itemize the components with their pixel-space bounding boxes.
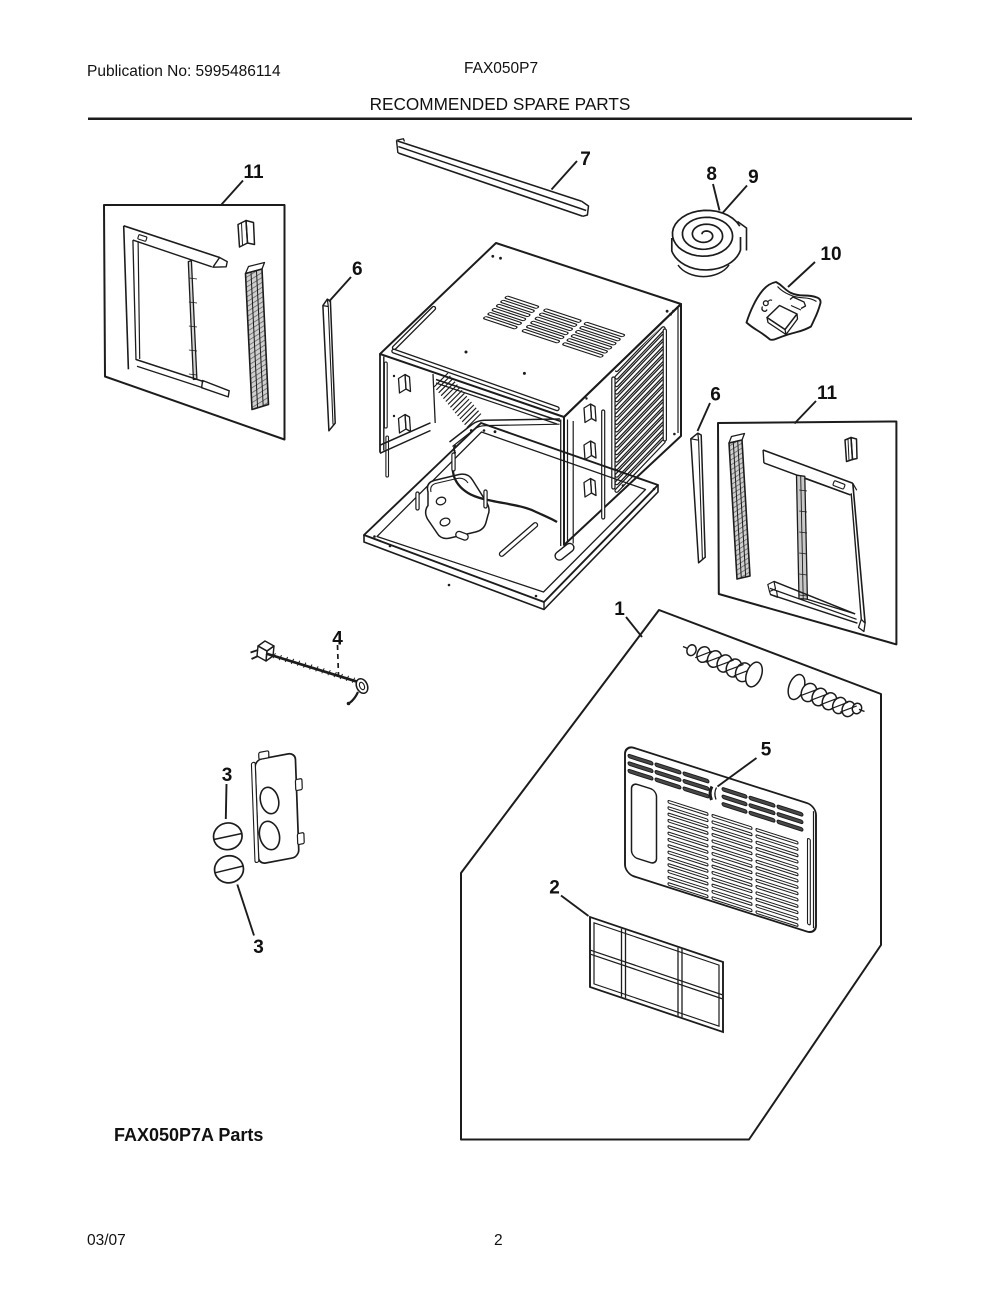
svg-text:2: 2	[549, 878, 560, 899]
svg-text:2: 2	[494, 1232, 503, 1249]
svg-text:8: 8	[706, 164, 717, 185]
svg-text:FAX050P7: FAX050P7	[464, 60, 538, 77]
svg-text:7: 7	[580, 149, 591, 170]
svg-text:10: 10	[820, 244, 841, 265]
svg-text:11: 11	[817, 383, 838, 404]
svg-text:FAX050P7A Parts: FAX050P7A Parts	[114, 1125, 263, 1145]
svg-text:6: 6	[352, 259, 363, 280]
svg-text:Publication No: 5995486114: Publication No: 5995486114	[87, 63, 281, 80]
svg-text:9: 9	[748, 167, 759, 188]
svg-text:3: 3	[253, 937, 264, 958]
svg-text:3: 3	[222, 765, 233, 786]
svg-text:1: 1	[614, 599, 625, 620]
svg-text:5: 5	[761, 740, 772, 761]
svg-text:03/07: 03/07	[87, 1232, 126, 1249]
svg-text:6: 6	[710, 385, 721, 406]
svg-text:RECOMMENDED SPARE PARTS: RECOMMENDED SPARE PARTS	[370, 94, 631, 114]
svg-text:11: 11	[243, 162, 264, 183]
